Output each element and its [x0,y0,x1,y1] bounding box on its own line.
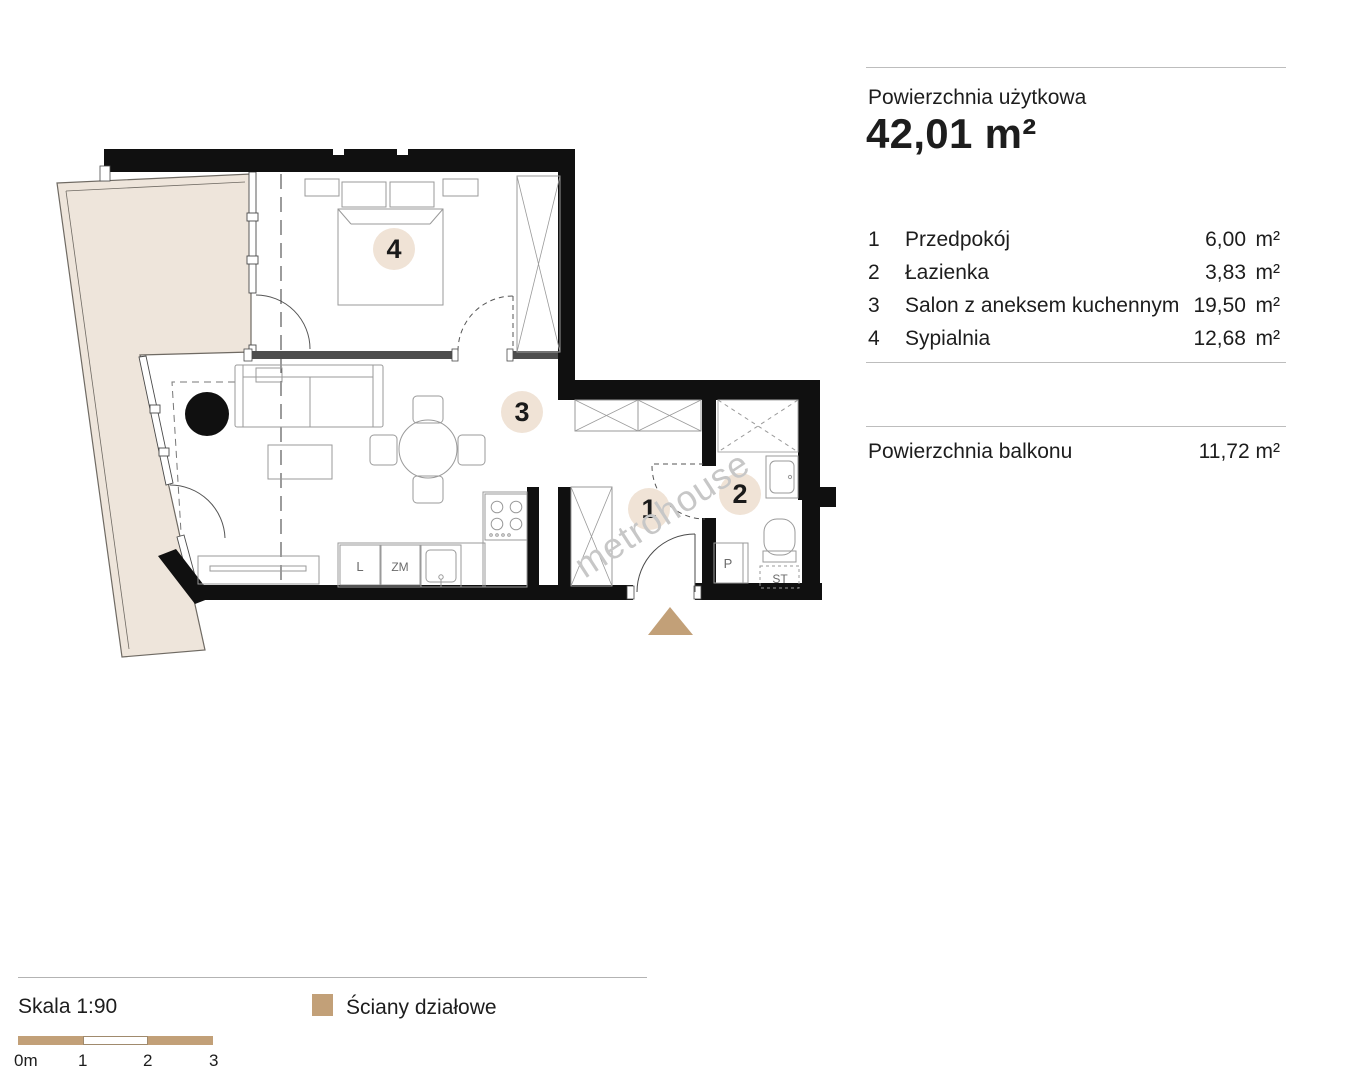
balcony-area-label: Powierzchnia balkonu [868,440,1072,464]
room-row-living: 3 Salon z aneksem kuchennym 19,50 m² [868,294,1280,327]
room-area-unit: m² [1246,327,1280,351]
room-row-hall: 1 Przedpokój 6,00 m² [868,228,1280,261]
partition-walls-label: Ściany działowe [346,996,497,1020]
room-name: Łazienka [905,261,989,285]
floorplan-page: { "info": { "usable_area_label": "Powier… [0,0,1351,1080]
scale-tick-3: 3 [209,1051,218,1071]
panel-balcony-divider [866,426,1286,427]
room-area-unit: m² [1246,261,1280,285]
room-number: 2 [868,261,905,285]
room-row-bedroom: 4 Sypialnia 12,68 m² [868,327,1280,360]
floor-plan: L ZM P ST 4 3 1 2 [0,0,850,680]
usable-area-value: 42,01 m² [866,110,1037,158]
scale-bar-segment-1 [18,1036,83,1045]
room-number: 1 [868,228,905,252]
room-area-unit: m² [1246,228,1280,252]
room-name: Przedpokój [905,228,1010,252]
scale-bar-segment-3 [148,1036,213,1045]
scale-label: Skala 1:90 [18,995,117,1019]
room-name: Sypialnia [905,327,990,351]
balcony-area-value: 11,72 m² [1199,440,1280,464]
panel-top-divider [866,67,1286,68]
room-list: 1 Przedpokój 6,00 m² 2 Łazienka 3,83 m² … [868,228,1280,360]
fridge-label: L [356,559,363,574]
panel-mid-divider [866,362,1286,363]
badge-bedroom-number: 4 [386,234,401,264]
st-label: ST [772,572,788,586]
room-area: 6,00 [1205,228,1246,252]
entrance-marker [648,607,693,635]
washing-machine-label: P [724,556,733,571]
room-area-unit: m² [1246,294,1280,318]
footer-divider [18,977,647,978]
dishwasher-label: ZM [391,560,408,574]
scale-bar-segment-2 [83,1036,148,1045]
scale-tick-0m: 0m [14,1051,38,1071]
room-number: 4 [868,327,905,351]
balcony-area-row: Powierzchnia balkonu 11,72 m² [868,440,1280,464]
armchair-pouf [185,392,229,436]
usable-area-label: Powierzchnia użytkowa [868,86,1086,110]
room-row-bathroom: 2 Łazienka 3,83 m² [868,261,1280,294]
badge-living-number: 3 [514,397,529,427]
room-name: Salon z aneksem kuchennym [905,294,1179,318]
room-area: 3,83 [1205,261,1246,285]
scale-tick-2: 2 [143,1051,152,1071]
scale-bar [18,1036,213,1045]
room-number: 3 [868,294,905,318]
scale-tick-1: 1 [78,1051,87,1071]
bedroom-furniture [305,176,560,352]
room-area: 19,50 [1193,294,1246,318]
bedroom-partition-wall [244,349,559,361]
partition-walls-swatch [312,994,333,1016]
kitchen [338,492,527,587]
room-area: 12,68 [1193,327,1246,351]
info-panel: Powierzchnia użytkowa 42,01 m² 1 Przedpo… [866,0,1286,520]
